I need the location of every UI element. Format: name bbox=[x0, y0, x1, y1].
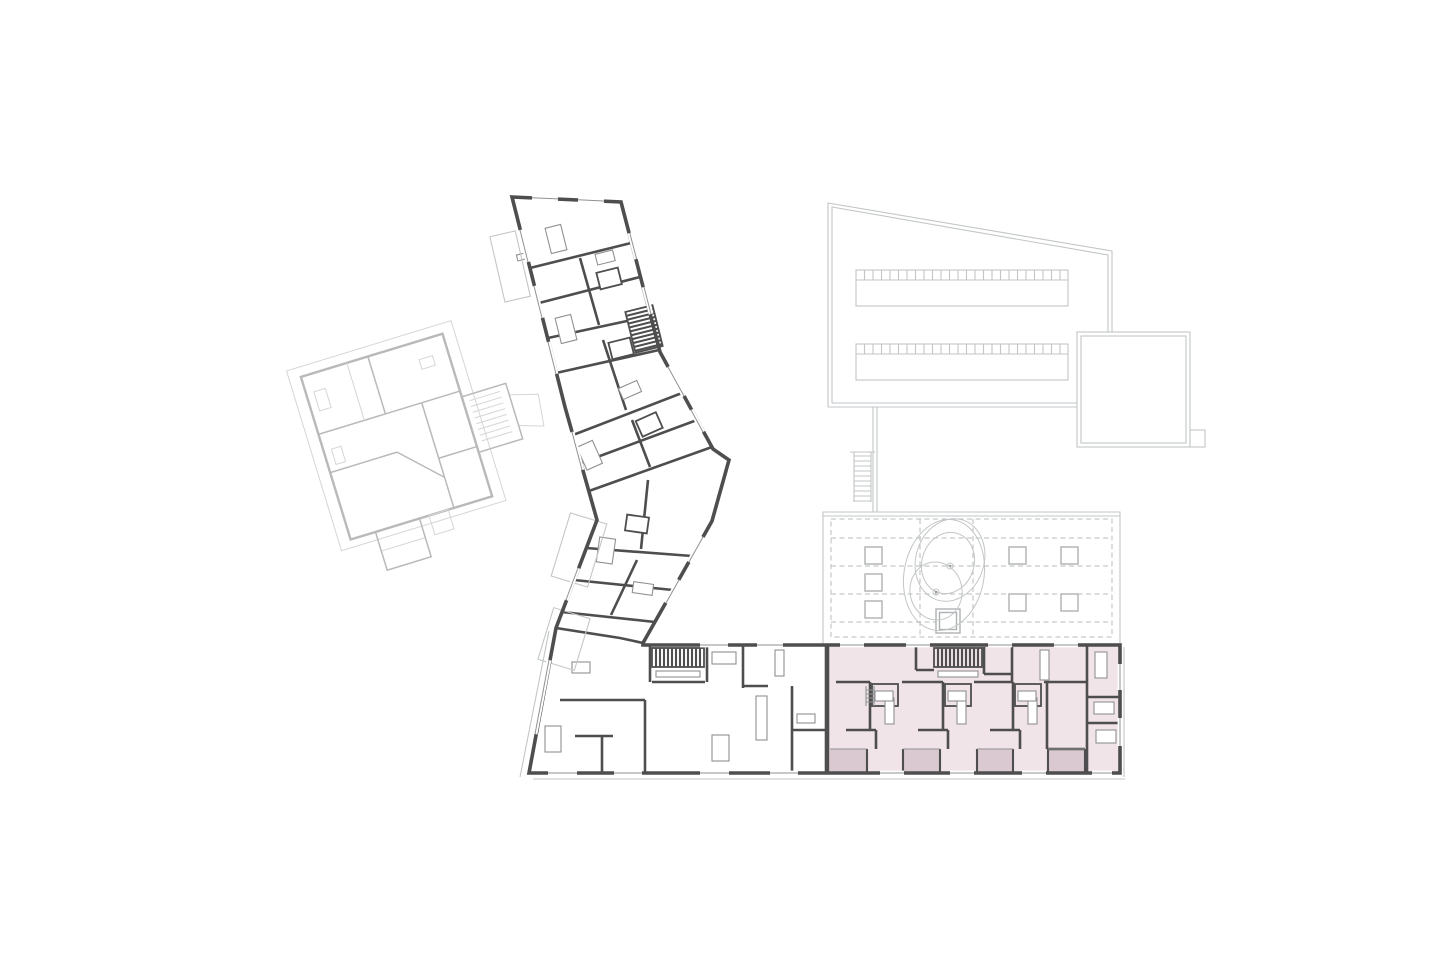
hall-annex-outer bbox=[1077, 332, 1190, 447]
existing-building-plan bbox=[287, 303, 575, 582]
hall-annex-notch bbox=[1190, 430, 1205, 447]
skylight-squares bbox=[865, 547, 1078, 633]
roof-courtyard bbox=[823, 510, 1120, 644]
hall-annex-inner bbox=[1081, 336, 1186, 443]
hall-skylight-strip bbox=[856, 270, 1068, 306]
floor-plan-page bbox=[0, 0, 1450, 967]
main-building bbox=[490, 197, 1125, 779]
balcony-area bbox=[830, 749, 867, 773]
balcony-area bbox=[1048, 749, 1085, 773]
stair-symbol-unit bbox=[934, 648, 982, 677]
balcony-area bbox=[977, 749, 1013, 773]
hall-inner-outline bbox=[832, 207, 1108, 403]
hall-outer-outline bbox=[828, 203, 1112, 407]
tree-symbols bbox=[895, 510, 995, 638]
balcony-area bbox=[903, 749, 940, 773]
floor-plan-canvas bbox=[0, 0, 1450, 967]
exterior-ladder-symbol bbox=[850, 452, 875, 502]
existing-outer-wall bbox=[301, 334, 492, 540]
hall-connector-walls bbox=[873, 407, 877, 512]
existing-interior-walls bbox=[301, 334, 492, 540]
existing-stair-symbol bbox=[469, 391, 512, 441]
hall-building bbox=[828, 203, 1205, 512]
hall-skylight-strip bbox=[856, 344, 1068, 380]
